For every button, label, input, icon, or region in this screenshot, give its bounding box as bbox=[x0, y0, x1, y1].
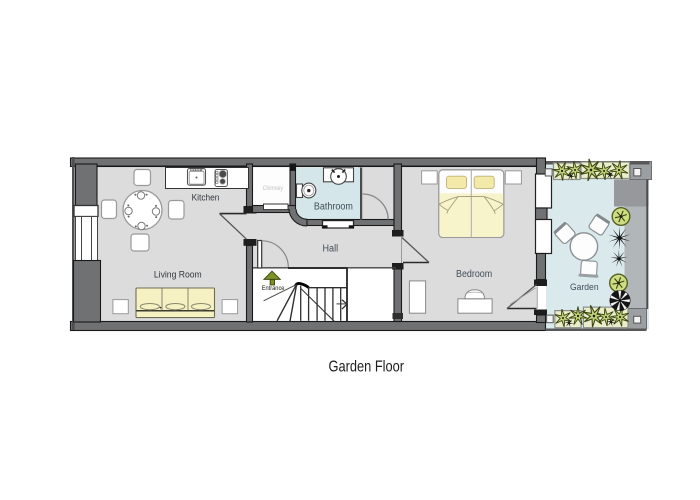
svg-text:Kitchen: Kitchen bbox=[192, 193, 220, 204]
svg-text:Garden: Garden bbox=[570, 282, 599, 293]
svg-text:Living Room: Living Room bbox=[154, 269, 202, 280]
svg-text:Bathroom: Bathroom bbox=[314, 202, 353, 213]
svg-text:Hall: Hall bbox=[323, 244, 339, 255]
svg-text:Garden Floor: Garden Floor bbox=[329, 358, 405, 375]
svg-text:Entrance: Entrance bbox=[262, 285, 285, 292]
svg-text:Bedroom: Bedroom bbox=[456, 269, 492, 280]
svg-text:Chimney: Chimney bbox=[263, 185, 284, 192]
